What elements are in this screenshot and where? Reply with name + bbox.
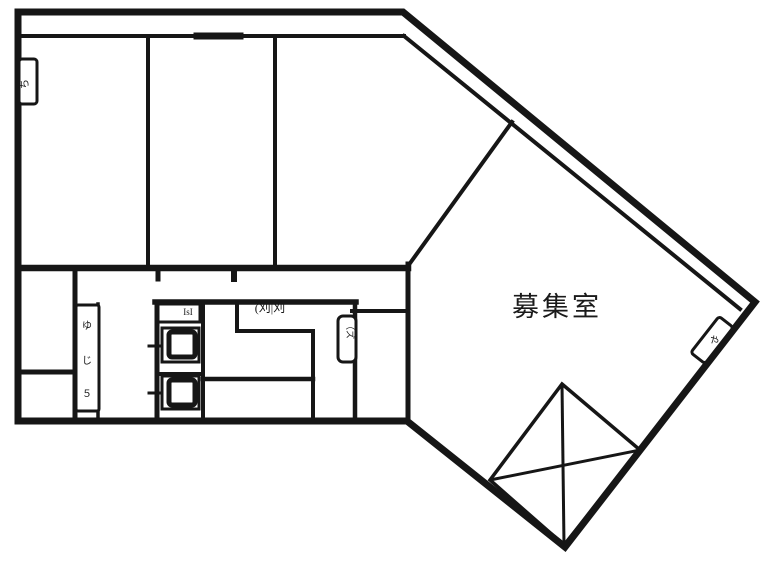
illegible-glyph: IsI xyxy=(183,307,193,317)
floorplan-canvas: ちゆじ５IsI(刈|刈（ズや 募集室 xyxy=(0,0,773,561)
floorplan-drawing: ちゆじ５IsI(刈|刈（ズや xyxy=(0,0,773,561)
illegible-glyph: ち xyxy=(19,79,31,89)
counter-box xyxy=(158,304,200,322)
illegible-glyph: じ xyxy=(82,355,92,367)
illegible-glyph: ５ xyxy=(82,389,92,400)
illegible-glyph: (刈|刈 xyxy=(255,301,285,315)
illegible-glyph: （ズ xyxy=(345,321,356,339)
illegible-glyph: ゆ xyxy=(82,320,92,332)
outer-wall xyxy=(18,12,755,547)
main-room-label: 募集室 xyxy=(512,285,602,324)
toilet-upper-bowl xyxy=(169,332,195,357)
toilet-lower-bowl xyxy=(169,380,195,405)
